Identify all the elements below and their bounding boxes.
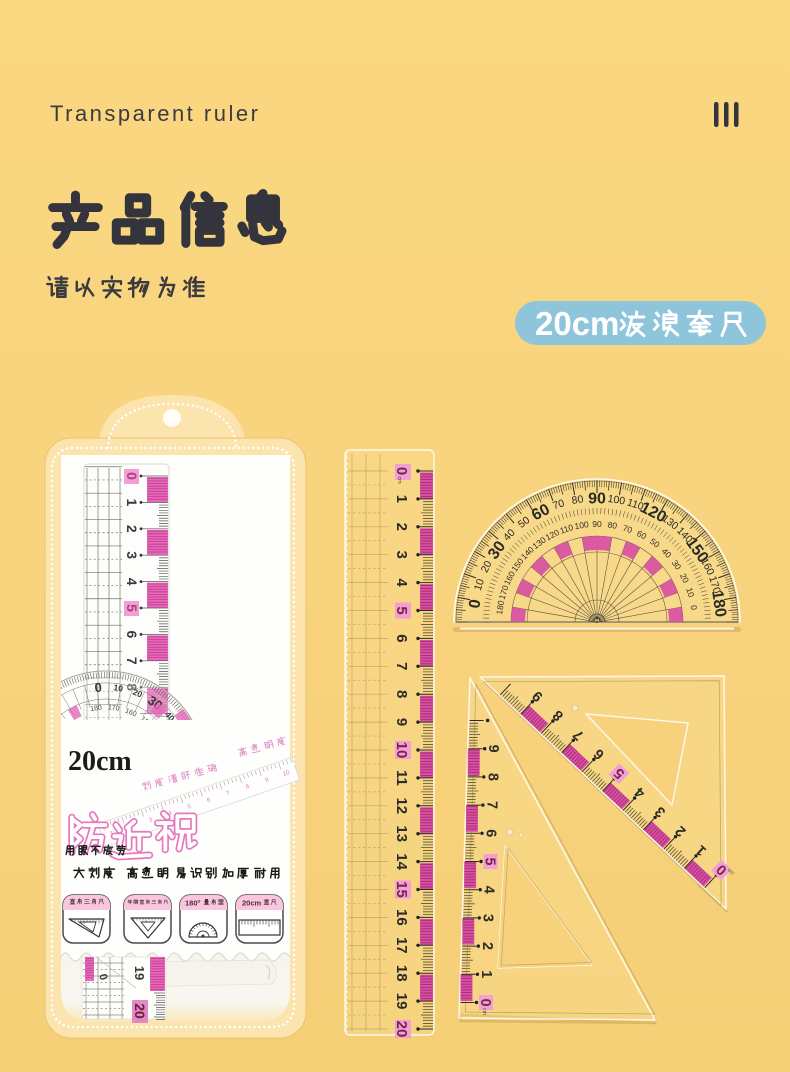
svg-text:10: 10 [113,682,124,693]
svg-text:20cm: 20cm [242,899,262,908]
svg-text:5: 5 [124,604,140,612]
svg-text:9: 9 [485,745,501,753]
svg-text:7: 7 [393,662,410,670]
svg-text:6: 6 [482,829,498,837]
svg-text:20: 20 [393,1021,410,1038]
svg-text:cm: cm [481,1008,487,1015]
svg-text:9: 9 [393,718,410,726]
svg-text:180°: 180° [185,899,201,908]
svg-text:170: 170 [107,704,120,712]
svg-text:0: 0 [393,467,410,475]
svg-text:20cm: 20cm [68,746,132,777]
svg-text:8: 8 [393,690,410,698]
svg-text:90: 90 [592,519,602,529]
svg-text:3: 3 [124,551,140,559]
svg-text:1: 1 [393,495,410,503]
svg-text:16: 16 [393,909,410,926]
svg-text:13: 13 [393,825,410,842]
svg-text:2: 2 [479,942,495,950]
svg-text:18: 18 [393,965,410,982]
svg-text:80: 80 [571,493,585,507]
svg-text:4: 4 [124,578,140,586]
svg-text:19: 19 [132,966,147,980]
svg-text:19: 19 [393,993,410,1010]
svg-text:5: 5 [393,606,410,614]
svg-text:80: 80 [607,520,618,531]
svg-text:6: 6 [393,634,410,642]
svg-text:20cm: 20cm [535,305,619,342]
svg-text:3: 3 [393,551,410,559]
svg-text:5: 5 [482,857,498,865]
svg-text:10: 10 [393,742,410,759]
svg-text:12: 12 [393,797,410,814]
svg-text:0: 0 [124,472,140,480]
svg-text:2: 2 [393,523,410,531]
svg-text:8: 8 [484,773,500,781]
svg-text:90: 90 [588,491,606,508]
svg-text:3: 3 [480,914,496,922]
svg-text:4: 4 [481,886,497,894]
svg-text:1: 1 [478,970,494,978]
svg-text:20: 20 [132,1003,148,1019]
svg-text:17: 17 [393,937,410,954]
svg-text:0: 0 [477,998,493,1006]
svg-text:15: 15 [393,881,410,898]
svg-text:2: 2 [124,525,140,533]
svg-text:4: 4 [393,578,410,587]
svg-text:0: 0 [94,680,103,696]
svg-text:11: 11 [393,770,410,786]
svg-text:6: 6 [124,631,140,639]
svg-text:14: 14 [393,853,410,870]
svg-text:180: 180 [494,599,506,615]
svg-text:7: 7 [124,657,140,665]
svg-text:cm: cm [396,476,402,484]
svg-text:1: 1 [124,499,140,507]
svg-text:7: 7 [483,801,499,809]
